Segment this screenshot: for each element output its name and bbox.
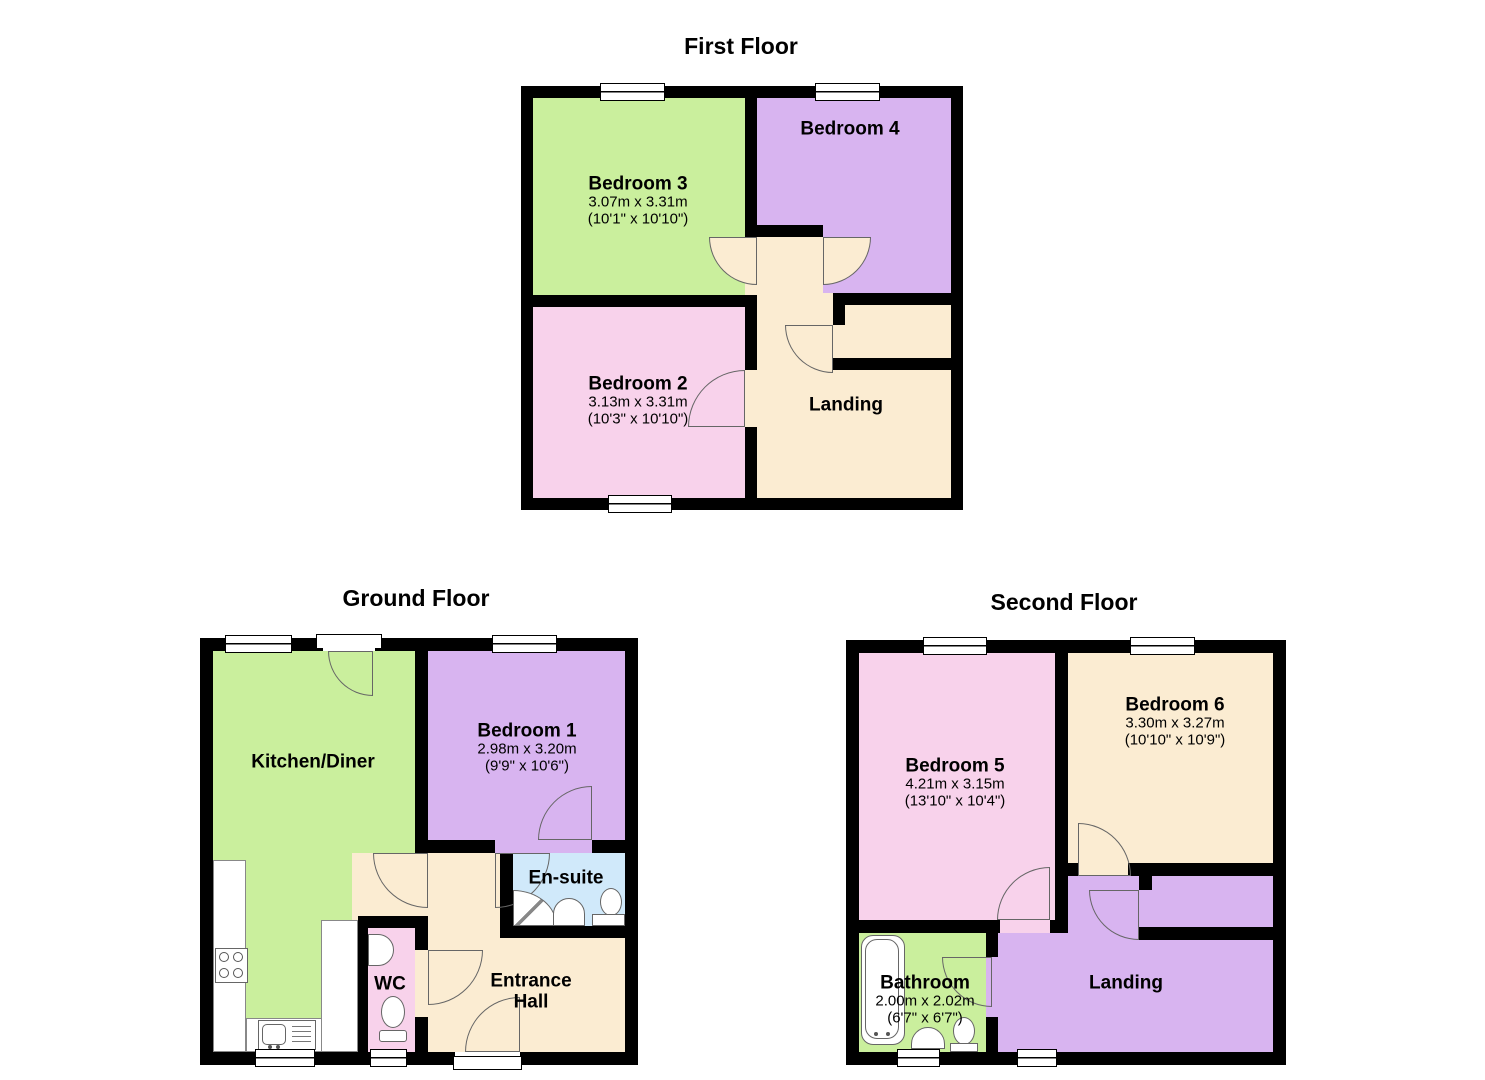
room-name: Landing [1089, 972, 1163, 993]
wall-segment [533, 295, 757, 307]
sink-icon [553, 898, 585, 926]
window-icon [492, 635, 557, 653]
room-name: Bedroom 6 [1125, 695, 1226, 716]
ground-floor-title: Ground Floor [343, 585, 490, 612]
room-label-landing: Landing [1089, 972, 1163, 993]
room-name: Bedroom 1 [477, 721, 576, 742]
window-icon [255, 1049, 315, 1067]
door-opening [323, 638, 375, 651]
room-dims-imperial: (10'10" x 10'9") [1125, 733, 1226, 750]
room-name: WC [374, 973, 406, 994]
room-label-ensuite: En-suite [529, 867, 604, 888]
room-label-bedroom-2: Bedroom 2 3.13m x 3.31m (10'3" x 10'10") [588, 374, 689, 429]
wall-segment [415, 651, 428, 853]
wall-segment [859, 920, 1000, 933]
second-floor-plan: Bedroom 5 4.21m x 3.15m (13'10" x 10'4")… [846, 640, 1286, 1065]
room-label-bedroom-4: Bedroom 4 [800, 118, 899, 139]
wall-segment [753, 225, 823, 237]
room-name: Bathroom [875, 973, 974, 994]
wall-segment [1050, 920, 1068, 933]
wall-segment [1055, 653, 1068, 933]
room-dims-metric: 4.21m x 3.15m [905, 777, 1006, 794]
wall-segment [833, 293, 951, 305]
wall-segment [833, 305, 845, 325]
room-dims-metric: 3.07m x 3.31m [588, 195, 689, 212]
room-label-wc: WC [374, 973, 406, 994]
room-label-bedroom-5: Bedroom 5 4.21m x 3.15m (13'10" x 10'4") [905, 756, 1006, 811]
floorplan-page: { "colors": { "wall": "#000000", "room_g… [0, 0, 1485, 1080]
toilet-icon [381, 996, 405, 1028]
room-label-landing: Landing [809, 394, 883, 415]
room-name: Kitchen/Diner [251, 751, 375, 772]
room-name: Bedroom 2 [588, 374, 689, 395]
wall-segment [833, 358, 951, 370]
wall-segment [358, 916, 428, 928]
hob-icon [215, 948, 248, 983]
toilet-icon [600, 888, 622, 916]
room-dims-imperial: (6'7" x 6'7") [875, 1011, 974, 1028]
window-icon [608, 495, 672, 513]
room-dims-metric: 3.30m x 3.27m [1125, 716, 1226, 733]
kitchen-counter [321, 920, 358, 1052]
wall-segment [428, 840, 495, 853]
wall-segment [1139, 927, 1273, 940]
wall-segment [415, 1017, 428, 1052]
room-label-bedroom-6: Bedroom 6 3.30m x 3.27m (10'10" x 10'9") [1125, 695, 1226, 750]
wall-segment [1128, 863, 1273, 876]
window-icon [815, 83, 880, 101]
room-dims-imperial: (10'3" x 10'10") [588, 412, 689, 429]
room-name: En-suite [529, 867, 604, 888]
room-dims-metric: 2.00m x 2.02m [875, 994, 974, 1011]
window-icon [897, 1049, 940, 1067]
toilet-icon [950, 1043, 978, 1052]
first-floor-title: First Floor [684, 33, 798, 60]
room-name: Entrance [490, 971, 571, 992]
wall-segment [745, 427, 757, 498]
toilet-icon [592, 914, 625, 926]
room-name: Bedroom 5 [905, 756, 1006, 777]
room-dims-imperial: (10'1" x 10'10") [588, 212, 689, 229]
kitchen-sink-icon [258, 1020, 316, 1050]
wall-segment [592, 840, 625, 853]
room-label-kitchen: Kitchen/Diner [251, 751, 375, 772]
first-floor-plan: Bedroom 3 3.07m x 3.31m (10'1" x 10'10")… [521, 86, 963, 510]
room-dims-metric: 3.13m x 3.31m [588, 395, 689, 412]
room-name: Hall [490, 992, 571, 1013]
wall-segment [745, 307, 757, 370]
room-name: Bedroom 3 [588, 174, 689, 195]
wall-segment [986, 933, 998, 957]
wall-segment [1068, 863, 1078, 876]
wall-segment [986, 1017, 998, 1052]
window-icon [225, 635, 292, 653]
room-name: Landing [809, 394, 883, 415]
room-dims-metric: 2.98m x 3.20m [477, 742, 576, 759]
room-label-entrance-hall: Entrance Hall [490, 971, 571, 1014]
wall-segment [415, 928, 428, 950]
wall-segment [358, 916, 368, 1052]
toilet-icon [379, 1030, 407, 1042]
window-icon [923, 637, 987, 655]
room-label-bathroom: Bathroom 2.00m x 2.02m (6'7" x 6'7") [875, 973, 974, 1028]
window-icon [1017, 1049, 1057, 1067]
wall-segment [500, 926, 625, 938]
room-dims-imperial: (13'10" x 10'4") [905, 794, 1006, 811]
window-icon [600, 83, 665, 101]
room-dims-imperial: (9'9" x 10'6") [477, 759, 576, 776]
room-name: Bedroom 4 [800, 118, 899, 139]
window-icon [1130, 637, 1195, 655]
wall-segment [1139, 876, 1152, 890]
ground-floor-plan: Kitchen/Diner Bedroom 1 2.98m x 3.20m (9… [200, 638, 638, 1065]
door-threshold-icon [453, 1056, 522, 1070]
window-icon [370, 1049, 407, 1067]
second-floor-title: Second Floor [991, 589, 1138, 616]
wall-segment [745, 98, 757, 237]
room-label-bedroom-3: Bedroom 3 3.07m x 3.31m (10'1" x 10'10") [588, 174, 689, 229]
room-label-bedroom-1: Bedroom 1 2.98m x 3.20m (9'9" x 10'6") [477, 721, 576, 776]
